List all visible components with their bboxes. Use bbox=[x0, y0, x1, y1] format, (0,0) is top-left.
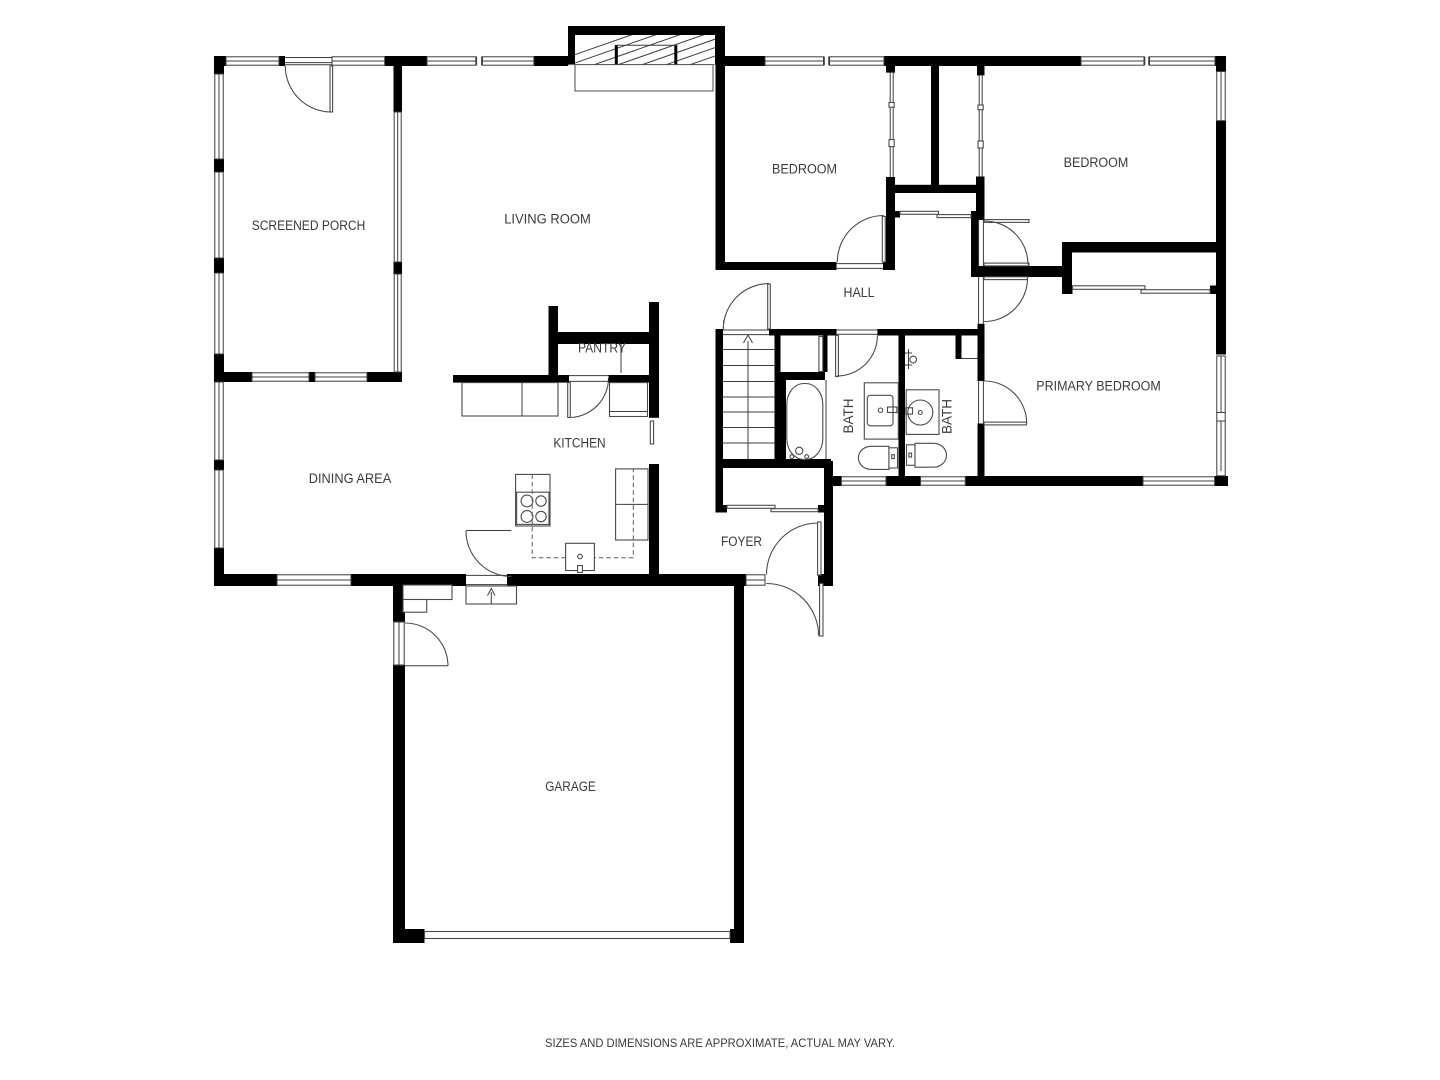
svg-text:BATH: BATH bbox=[939, 399, 954, 434]
svg-text:SIZES AND DIMENSIONS ARE APPRO: SIZES AND DIMENSIONS ARE APPROXIMATE, AC… bbox=[545, 1036, 895, 1050]
svg-text:DINING AREA: DINING AREA bbox=[309, 471, 392, 486]
svg-text:PRIMARY BEDROOM: PRIMARY BEDROOM bbox=[1036, 379, 1161, 394]
svg-text:HALL: HALL bbox=[844, 285, 875, 300]
svg-text:GARAGE: GARAGE bbox=[545, 779, 596, 794]
svg-text:SCREENED PORCH: SCREENED PORCH bbox=[252, 218, 366, 233]
svg-text:LIVING ROOM: LIVING ROOM bbox=[504, 211, 591, 226]
svg-text:BEDROOM: BEDROOM bbox=[1064, 155, 1129, 170]
svg-text:BATH: BATH bbox=[841, 399, 856, 434]
svg-text:PANTRY: PANTRY bbox=[578, 341, 626, 356]
svg-text:FOYER: FOYER bbox=[721, 534, 762, 549]
svg-text:BEDROOM: BEDROOM bbox=[772, 162, 837, 177]
svg-text:KITCHEN: KITCHEN bbox=[553, 435, 605, 450]
